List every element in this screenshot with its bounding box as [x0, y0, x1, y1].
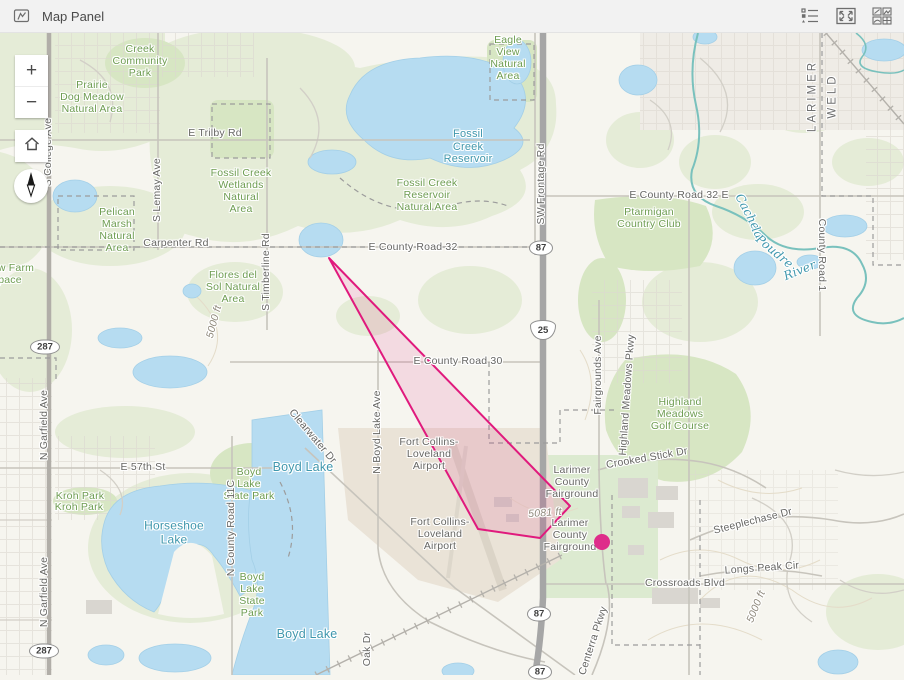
map-panel-app: { "header": { "title": "Map Panel", "lef…	[0, 0, 904, 675]
page-title: Map Panel	[42, 9, 104, 24]
overview-icon[interactable]	[872, 6, 892, 26]
zoom-controls: + −	[15, 55, 48, 118]
header: Map Panel	[0, 0, 904, 33]
map-canvas[interactable]	[0, 33, 904, 675]
compass-button[interactable]	[14, 169, 48, 203]
zoom-in-button[interactable]: +	[15, 55, 48, 87]
expand-icon[interactable]	[836, 6, 856, 26]
basemap	[0, 33, 904, 675]
compass-needle-icon	[14, 167, 48, 206]
legend-icon[interactable]	[800, 6, 820, 26]
home-button[interactable]	[15, 130, 48, 162]
map-panel-icon	[12, 6, 32, 26]
zoom-out-button[interactable]: −	[15, 87, 48, 118]
home-icon	[23, 135, 41, 158]
